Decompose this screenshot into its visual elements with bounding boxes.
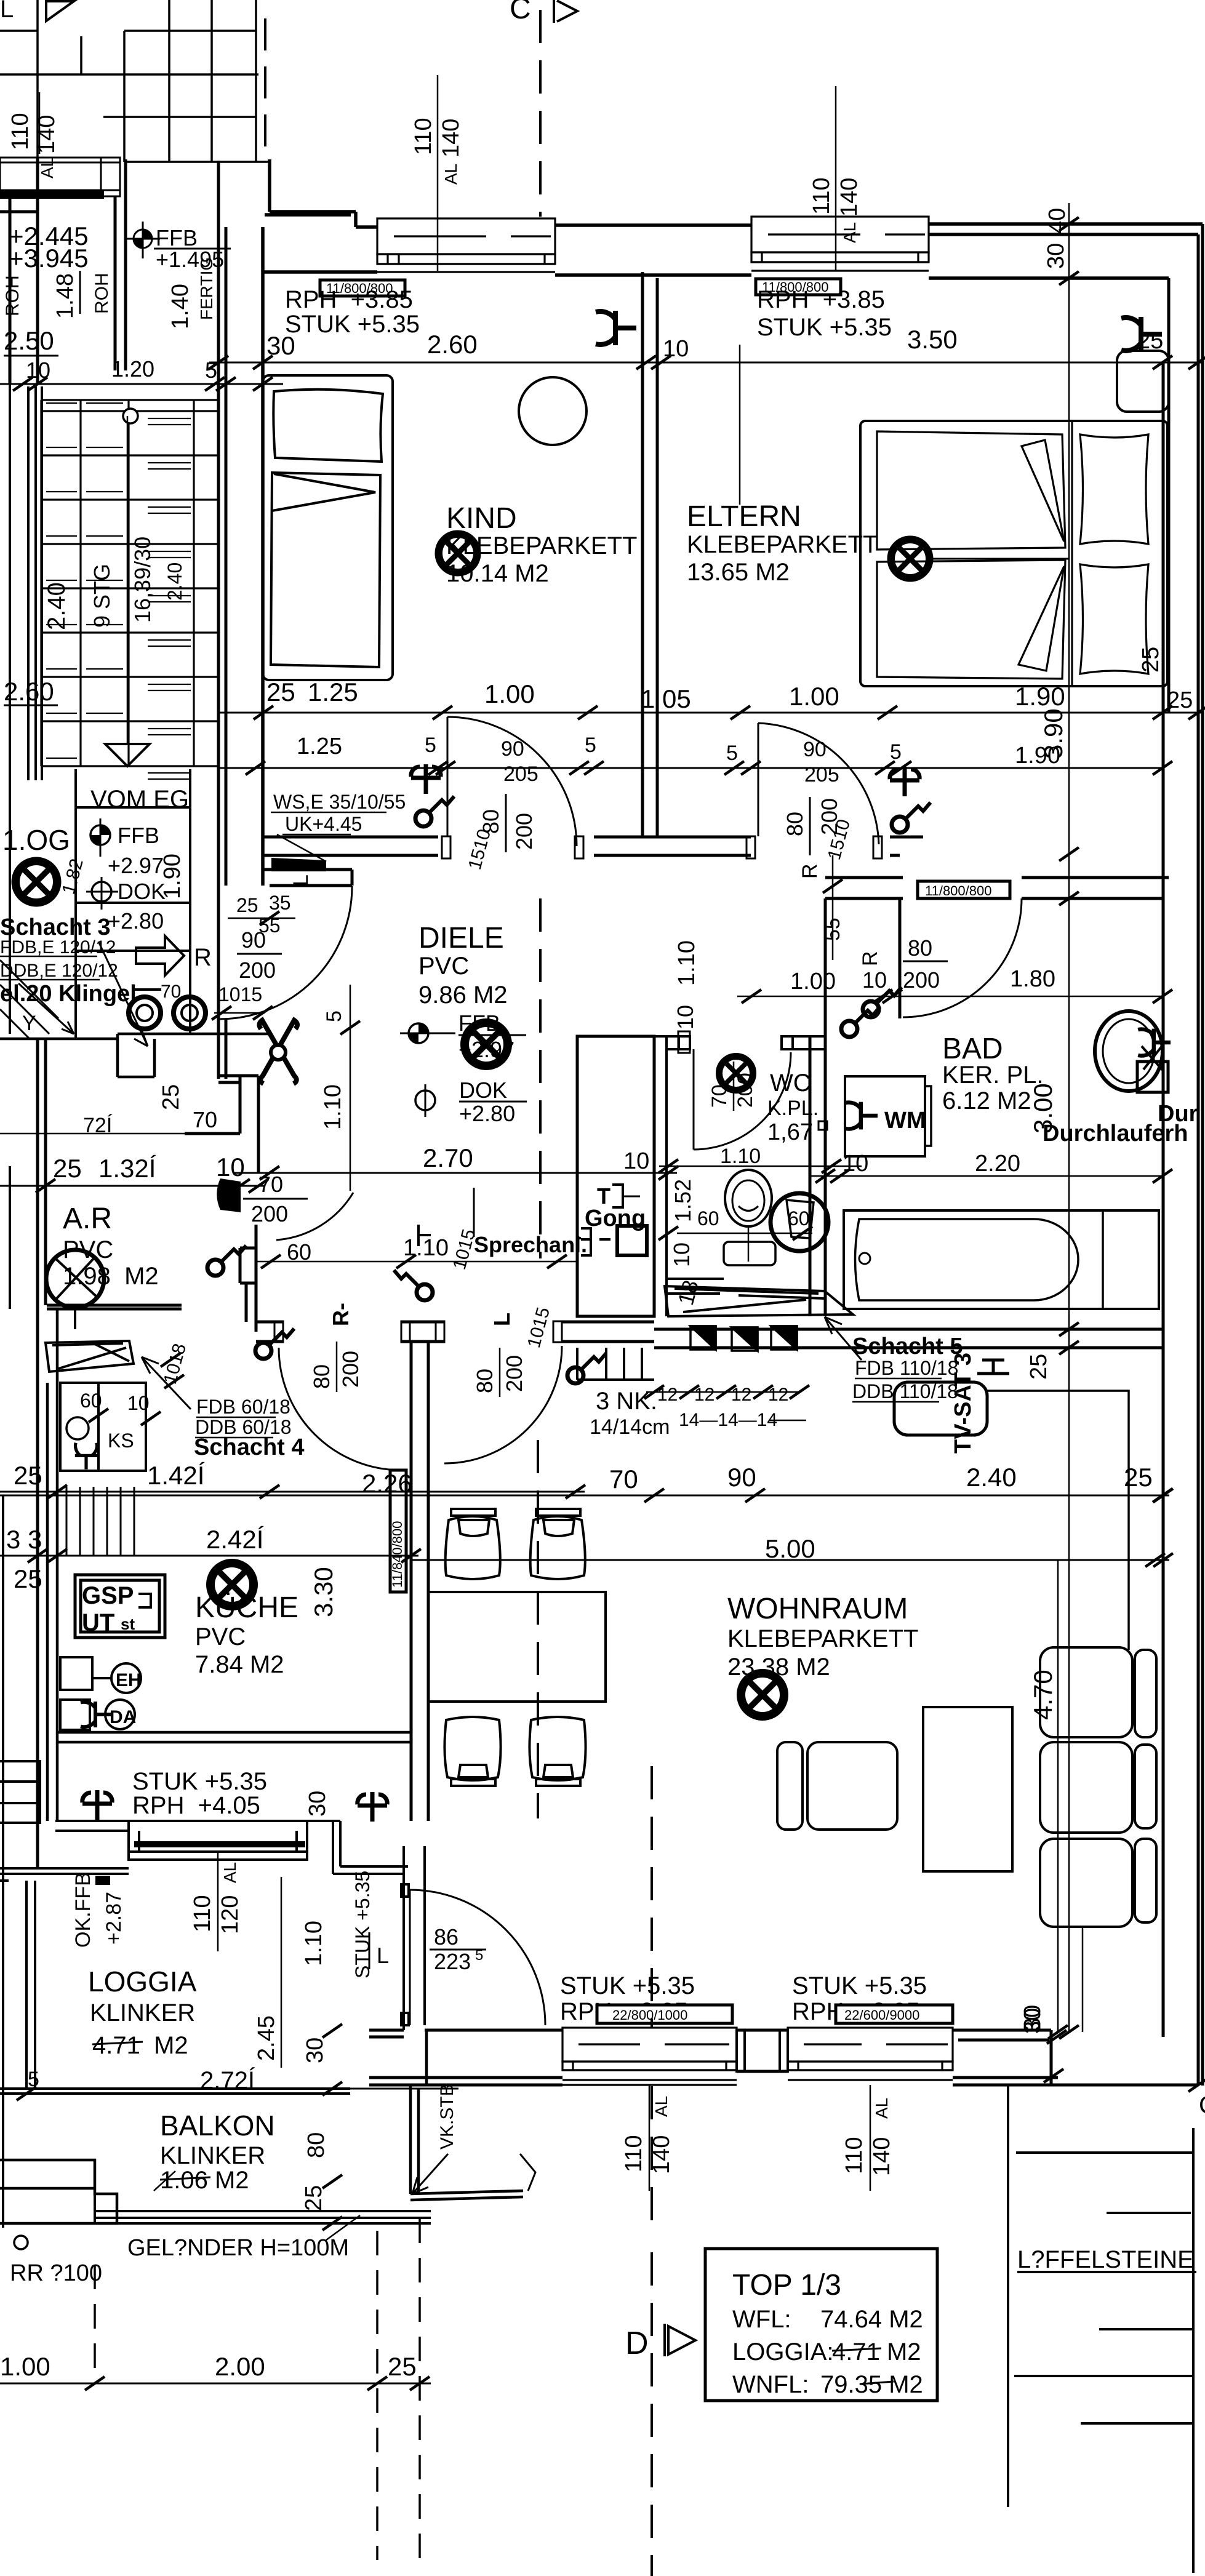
- svg-text:205: 205: [503, 762, 538, 786]
- svg-text:R-: R-: [328, 1303, 353, 1326]
- svg-text:1.00: 1.00: [790, 969, 836, 994]
- svg-text:LOGGIA: LOGGIA: [88, 1966, 197, 1998]
- svg-text:35: 35: [269, 892, 291, 914]
- svg-text:110: 110: [621, 2135, 647, 2172]
- svg-text:60: 60: [788, 1207, 810, 1230]
- svg-text:2.60: 2.60: [427, 330, 478, 359]
- svg-text:C: C: [510, 0, 531, 25]
- svg-text:STUK +5.35: STUK +5.35: [351, 1871, 374, 1978]
- svg-text:80: 80: [472, 1369, 497, 1393]
- svg-text:D: D: [625, 2326, 649, 2361]
- svg-text:+2.80: +2.80: [459, 1101, 515, 1126]
- svg-text:BALKON: BALKON: [160, 2110, 275, 2142]
- svg-text:80: 80: [309, 1364, 334, 1389]
- svg-text:110: 110: [7, 113, 33, 150]
- svg-text:WS,E 35/10/55: WS,E 35/10/55: [273, 791, 406, 813]
- svg-text:140: 140: [869, 2137, 895, 2176]
- svg-text:WFL:: WFL:: [732, 2306, 791, 2333]
- svg-text:AL: AL: [220, 1862, 239, 1883]
- svg-text:2.72Í: 2.72Í: [200, 2066, 255, 2094]
- svg-text:200: 200: [239, 958, 276, 983]
- svg-text:ROH: ROH: [2, 275, 23, 316]
- svg-text:12: 12: [768, 1385, 788, 1405]
- svg-text:KLEBEPARKETT: KLEBEPARKETT: [687, 531, 878, 558]
- svg-text:1.00: 1.00: [0, 2352, 50, 2381]
- svg-text:5: 5: [475, 1947, 483, 1964]
- svg-text:5: 5: [205, 358, 217, 383]
- svg-text:4.71 M2: 4.71 M2: [92, 2032, 188, 2059]
- svg-text:2.40: 2.40: [164, 562, 186, 601]
- svg-text:KIND: KIND: [446, 502, 517, 535]
- svg-text:FDB 60/18: FDB 60/18: [196, 1396, 290, 1418]
- svg-text:30: 30: [266, 331, 295, 360]
- svg-text:25: 25: [266, 678, 295, 706]
- svg-text:2.70: 2.70: [423, 1143, 473, 1172]
- svg-text:25: 25: [1138, 647, 1164, 673]
- svg-text:200: 200: [338, 1351, 363, 1388]
- svg-text:ROH: ROH: [92, 273, 112, 314]
- svg-text:R: R: [859, 951, 882, 966]
- svg-text:1.10: 1.10: [320, 1084, 346, 1130]
- svg-text:1.20: 1.20: [111, 356, 154, 382]
- svg-text:WNFL:: WNFL:: [732, 2371, 809, 2398]
- svg-text:RPH +4.05: RPH +4.05: [132, 1792, 260, 1819]
- svg-text:LOGGIA:: LOGGIA:: [732, 2338, 834, 2366]
- svg-text:FERTIG: FERTIG: [197, 257, 216, 320]
- svg-text:L: L: [489, 1313, 514, 1326]
- svg-text:205: 205: [804, 763, 839, 786]
- svg-text:80: 80: [303, 2132, 329, 2158]
- svg-text:STUK +5.35: STUK +5.35: [560, 1972, 695, 1999]
- svg-text:PVC: PVC: [195, 1623, 246, 1650]
- svg-text:WM: WM: [884, 1108, 926, 1134]
- svg-text:25: 25: [14, 1564, 42, 1593]
- svg-text:3.30: 3.30: [309, 1567, 338, 1617]
- svg-text:FDB,E 120/12: FDB,E 120/12: [0, 937, 116, 958]
- svg-text:30: 30: [305, 1791, 330, 1817]
- svg-text:STUK +5.35: STUK +5.35: [792, 1972, 927, 1999]
- svg-text:200: 200: [511, 813, 537, 850]
- svg-text:4.71 M2: 4.71 M2: [832, 2338, 921, 2366]
- svg-text:5: 5: [322, 1010, 346, 1022]
- svg-text:70: 70: [193, 1107, 217, 1132]
- svg-text:DOK: DOK: [459, 1078, 507, 1103]
- svg-text:TOP 1/3: TOP 1/3: [732, 2269, 841, 2302]
- svg-text:6.12 M2: 6.12 M2: [942, 1087, 1031, 1114]
- svg-text:12: 12: [731, 1385, 751, 1405]
- svg-text:60: 60: [697, 1207, 719, 1230]
- svg-text:L?FFELSTEINE: L?FFELSTEINE: [1017, 2246, 1194, 2273]
- svg-text:L: L: [0, 0, 14, 23]
- svg-text:80: 80: [782, 812, 807, 836]
- svg-text:25: 25: [53, 1154, 82, 1183]
- svg-text:AL: AL: [441, 164, 460, 185]
- svg-text:140: 140: [438, 119, 464, 158]
- svg-text:110: 110: [809, 177, 835, 215]
- svg-text:86: 86: [434, 1924, 458, 1950]
- svg-text:40: 40: [1044, 208, 1070, 234]
- svg-text:2.26: 2.26: [362, 1469, 412, 1498]
- svg-text:R: R: [798, 863, 822, 879]
- svg-text:L: L: [377, 1943, 389, 1968]
- svg-text:2.45: 2.45: [254, 2015, 279, 2061]
- svg-text:2.40: 2.40: [966, 1463, 1017, 1492]
- svg-text:VOM EG: VOM EG: [90, 786, 189, 813]
- svg-text:1.52: 1.52: [670, 1179, 695, 1222]
- svg-text:80: 80: [908, 935, 932, 961]
- svg-text:2.50: 2.50: [4, 326, 54, 355]
- svg-text:UK+4.45: UK+4.45: [285, 813, 362, 835]
- svg-text:74.64 M2: 74.64 M2: [820, 2306, 923, 2333]
- svg-text:RPH +3.85: RPH +3.85: [757, 286, 885, 313]
- svg-text:10: 10: [669, 1242, 694, 1267]
- svg-text:11/840/800: 11/840/800: [390, 1521, 405, 1588]
- svg-text:1.00: 1.00: [789, 682, 839, 711]
- svg-text:70: 70: [258, 1172, 283, 1197]
- svg-text:223: 223: [434, 1949, 471, 1974]
- svg-text:25: 25: [14, 1461, 42, 1490]
- svg-text:72Í: 72Í: [83, 1114, 113, 1137]
- svg-text:200: 200: [903, 967, 940, 993]
- svg-text:110: 110: [841, 2137, 867, 2174]
- svg-text:5.00: 5.00: [765, 1534, 815, 1563]
- svg-text:T: T: [597, 1183, 611, 1209]
- svg-text:+2.80: +2.80: [108, 908, 164, 934]
- svg-text:1.25: 1.25: [297, 734, 342, 759]
- svg-text:25: 25: [236, 894, 258, 916]
- svg-text:R: R: [194, 944, 212, 971]
- svg-text:1 05: 1 05: [641, 684, 691, 713]
- svg-text:110: 110: [190, 1895, 215, 1932]
- svg-text:3 3: 3 3: [6, 1525, 42, 1554]
- svg-text:10: 10: [862, 967, 887, 993]
- svg-text:2.42Í: 2.42Í: [206, 1525, 264, 1554]
- svg-text:140: 140: [34, 115, 60, 154]
- svg-text:14—14—14: 14—14—14: [679, 1410, 777, 1430]
- svg-text:KS: KS: [108, 1430, 134, 1452]
- svg-text:5: 5: [585, 734, 596, 757]
- svg-text:30: 30: [1020, 2005, 1046, 2031]
- svg-text:1.OG: 1.OG: [2, 824, 70, 856]
- svg-text:Schacht 4: Schacht 4: [194, 1434, 305, 1460]
- svg-text:22/800/1000: 22/800/1000: [612, 2007, 687, 2023]
- svg-text:Durchlauferh: Durchlauferh: [1043, 1121, 1188, 1146]
- svg-text:13.65 M2: 13.65 M2: [687, 559, 790, 586]
- svg-text:KLINKER: KLINKER: [90, 1999, 195, 2026]
- svg-text:ELTERN: ELTERN: [687, 500, 801, 533]
- svg-text:Sprechanl.: Sprechanl.: [474, 1232, 587, 1257]
- svg-text:90: 90: [501, 737, 524, 761]
- svg-text:25: 25: [1026, 1354, 1052, 1380]
- svg-text:120: 120: [217, 1895, 243, 1934]
- svg-text:WC: WC: [770, 1070, 811, 1097]
- svg-text:16,39/30: 16,39/30: [130, 537, 155, 623]
- svg-text:2.20: 2.20: [975, 1151, 1020, 1177]
- svg-text:DOK: DOK: [118, 879, 166, 904]
- svg-text:25: 25: [388, 2352, 417, 2381]
- svg-text:200: 200: [502, 1355, 527, 1392]
- svg-text:AL: AL: [840, 222, 859, 243]
- svg-text:K.PL.: K.PL.: [767, 1097, 819, 1120]
- svg-text:1.10: 1.10: [720, 1145, 761, 1168]
- svg-text:+3.945: +3.945: [9, 244, 89, 273]
- svg-text:7.84 M2: 7.84 M2: [195, 1651, 284, 1678]
- svg-text:200: 200: [251, 1201, 288, 1226]
- svg-text:DIELE: DIELE: [418, 922, 504, 954]
- svg-text:WOHNRAUM: WOHNRAUM: [727, 1593, 908, 1625]
- svg-text:60: 60: [80, 1390, 102, 1412]
- svg-text:1.40: 1.40: [167, 284, 193, 329]
- svg-text:22/600/9000: 22/600/9000: [844, 2007, 919, 2023]
- svg-text:GSP: GSP: [82, 1582, 134, 1609]
- svg-text:1.00: 1.00: [484, 679, 535, 708]
- svg-text:2.00: 2.00: [215, 2352, 265, 2381]
- svg-text:1015: 1015: [218, 983, 262, 1006]
- svg-text:1.10: 1.10: [403, 1235, 449, 1261]
- svg-text:90: 90: [803, 738, 827, 761]
- svg-text:1.80: 1.80: [1010, 966, 1055, 992]
- svg-text:30: 30: [1043, 243, 1069, 269]
- svg-text:STUK +5.35: STUK +5.35: [757, 314, 892, 341]
- svg-text:140: 140: [836, 178, 862, 217]
- svg-text:5: 5: [726, 742, 738, 765]
- svg-text:30: 30: [302, 2038, 328, 2063]
- svg-text:1,67: 1,67: [767, 1119, 813, 1145]
- svg-text:+2.87: +2.87: [102, 1892, 126, 1945]
- svg-text:110: 110: [410, 118, 436, 155]
- svg-text:12: 12: [694, 1385, 715, 1405]
- svg-text:1.10: 1.10: [301, 1921, 327, 1966]
- svg-text:VK.STB: VK.STB: [437, 2084, 457, 2150]
- svg-text:70: 70: [609, 1465, 638, 1494]
- svg-text:1.90: 1.90: [159, 854, 185, 899]
- svg-text:AL: AL: [872, 2098, 891, 2119]
- svg-text:10: 10: [127, 1392, 150, 1414]
- svg-text:3.50: 3.50: [907, 325, 958, 354]
- svg-text:25: 25: [301, 2185, 327, 2211]
- svg-text:A.R: A.R: [63, 1202, 112, 1235]
- svg-text:KER. PL.: KER. PL.: [942, 1062, 1044, 1089]
- svg-text:UT: UT: [82, 1609, 114, 1636]
- svg-text:25: 25: [1124, 1463, 1153, 1492]
- svg-text:FFB: FFB: [118, 823, 159, 848]
- svg-text:KLEBEPARKETT: KLEBEPARKETT: [727, 1625, 918, 1652]
- svg-text:DA: DA: [110, 1707, 136, 1727]
- svg-text:14/14cm: 14/14cm: [590, 1415, 670, 1439]
- svg-text:2.40: 2.40: [43, 582, 70, 630]
- svg-text:PVC: PVC: [418, 953, 469, 980]
- svg-text:Y: Y: [22, 1012, 36, 1035]
- svg-text:9.86 M2: 9.86 M2: [418, 982, 508, 1009]
- svg-text:AL: AL: [652, 2096, 671, 2117]
- svg-text:1.25: 1.25: [308, 678, 358, 706]
- svg-text:10: 10: [623, 1148, 649, 1174]
- svg-text:10: 10: [673, 1005, 698, 1030]
- svg-text:1.32Í: 1.32Í: [98, 1154, 156, 1183]
- svg-text:RPH +3.85: RPH +3.85: [285, 286, 413, 313]
- svg-text:12: 12: [657, 1385, 678, 1405]
- svg-text:11/800/800: 11/800/800: [925, 883, 991, 898]
- svg-text:1.42Í: 1.42Í: [147, 1461, 205, 1490]
- svg-text:25: 25: [1167, 687, 1193, 713]
- svg-text:BAD: BAD: [942, 1033, 1003, 1065]
- svg-text:Schacht 3: Schacht 3: [0, 914, 111, 940]
- svg-text:FDB 110/18: FDB 110/18: [855, 1357, 958, 1379]
- svg-text:5: 5: [425, 734, 436, 757]
- svg-text:TV-SAT 3: TV-SAT 3: [950, 1353, 976, 1454]
- svg-text:EH: EH: [116, 1670, 142, 1690]
- svg-text:79.35 M2: 79.35 M2: [820, 2371, 923, 2398]
- svg-text:2.60: 2.60: [4, 677, 54, 706]
- svg-text:+2.97: +2.97: [108, 853, 164, 878]
- svg-text:st: st: [121, 1615, 135, 1633]
- svg-text:10: 10: [663, 336, 689, 362]
- svg-text:1.90: 1.90: [1015, 682, 1065, 711]
- svg-text:KLINKER: KLINKER: [160, 2142, 265, 2169]
- svg-text:STUK +5.35: STUK +5.35: [285, 311, 420, 338]
- svg-text:1.90: 1.90: [1015, 743, 1060, 769]
- svg-text:1.48: 1.48: [52, 273, 78, 319]
- svg-text:25: 25: [158, 1084, 184, 1110]
- svg-text:1.06 M2: 1.06 M2: [160, 2167, 249, 2194]
- svg-text:STUK +5.35: STUK +5.35: [132, 1768, 267, 1795]
- svg-text:GEL?NDER H=100M: GEL?NDER H=100M: [127, 2235, 349, 2261]
- svg-text:AL: AL: [38, 158, 57, 178]
- svg-text:RR ?100: RR ?100: [10, 2260, 102, 2286]
- svg-text:10: 10: [216, 1153, 245, 1182]
- svg-text:9 STG: 9 STG: [89, 564, 114, 628]
- svg-text:5: 5: [890, 740, 902, 764]
- svg-text:1.10: 1.10: [674, 940, 700, 986]
- svg-text:4.70: 4.70: [1028, 1670, 1057, 1720]
- svg-text:C: C: [1199, 2092, 1205, 2119]
- svg-text:90: 90: [727, 1463, 756, 1492]
- svg-text:OK.FFB: OK.FFB: [71, 1872, 95, 1948]
